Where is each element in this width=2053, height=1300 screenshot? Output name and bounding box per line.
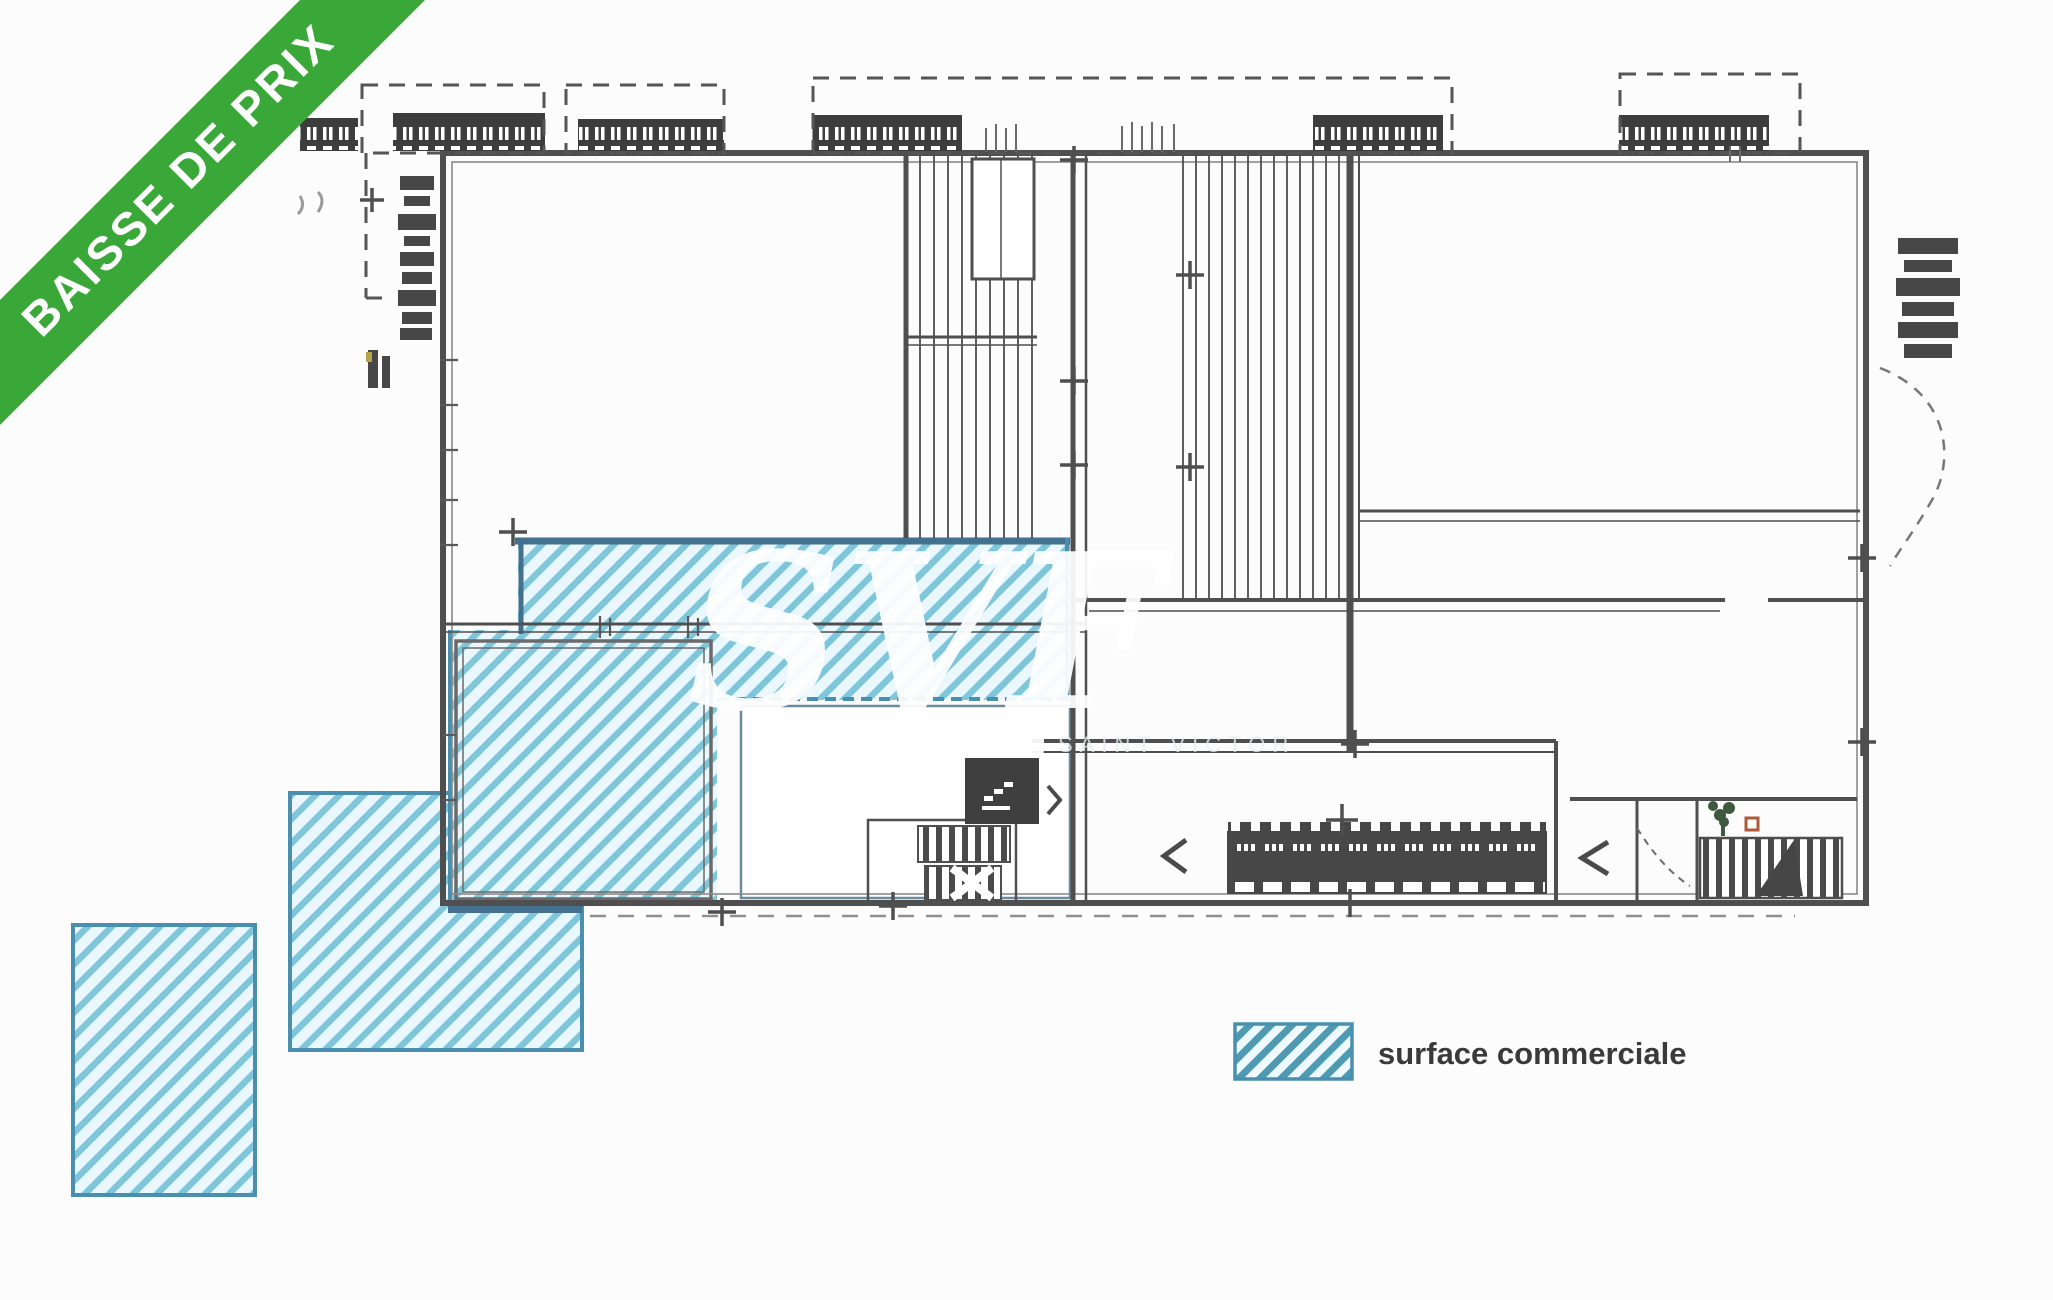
right-annotation-block	[1896, 238, 1960, 358]
commercial-area-detached-left	[73, 925, 255, 1195]
legend: surface commerciale	[1235, 1024, 1686, 1079]
price-drop-label: BAISSE DE PRIX	[11, 13, 344, 346]
canopy-outlines	[362, 74, 1800, 298]
ribbon-band	[0, 0, 425, 425]
right-dashed-leader	[1880, 368, 1944, 566]
legend-label: surface commerciale	[1378, 1036, 1686, 1071]
legend-swatch	[1235, 1024, 1352, 1079]
floor-plan-page: SVF SAINT VICTOR surface commerciale BAI…	[0, 0, 2053, 1300]
watermark-text: SVF	[688, 506, 1176, 759]
floor-plan-drawing: SVF SAINT VICTOR surface commerciale BAI…	[0, 0, 2053, 1300]
watermark: SVF SAINT VICTOR	[688, 506, 1296, 759]
price-drop-ribbon: BAISSE DE PRIX	[0, 0, 425, 425]
watermark-subtext: SAINT VICTOR	[1058, 732, 1295, 757]
left-annotation-block	[366, 176, 436, 388]
watermark-underline	[788, 730, 1044, 755]
pencil-marks	[298, 192, 322, 214]
commercial-area-block	[448, 630, 717, 906]
loading-docks	[300, 113, 1769, 151]
